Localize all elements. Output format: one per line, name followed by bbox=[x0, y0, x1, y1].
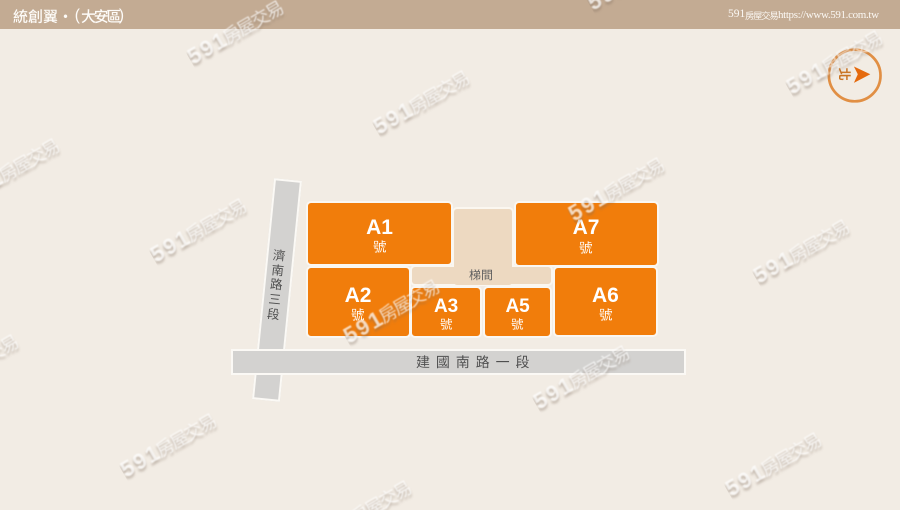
svg-text:591: 591 bbox=[369, 99, 418, 142]
svg-text:591: 591 bbox=[146, 224, 195, 267]
svg-text:591: 591 bbox=[749, 248, 798, 291]
svg-text:591: 591 bbox=[146, 227, 195, 270]
svg-text:591: 591 bbox=[183, 29, 232, 72]
svg-text:591: 591 bbox=[369, 96, 418, 139]
svg-text:591: 591 bbox=[749, 245, 798, 288]
svg-text:591: 591 bbox=[116, 439, 165, 482]
svg-text:591: 591 bbox=[529, 371, 578, 414]
svg-text:591: 591 bbox=[0, 164, 8, 207]
svg-text:591: 591 bbox=[0, 167, 9, 210]
svg-text:591: 591 bbox=[721, 458, 770, 501]
svg-text:591: 591 bbox=[529, 374, 578, 417]
svg-text:591: 591 bbox=[311, 506, 360, 510]
svg-text:591: 591 bbox=[183, 26, 232, 69]
svg-text:591: 591 bbox=[116, 442, 165, 485]
svg-text:591: 591 bbox=[721, 461, 770, 504]
